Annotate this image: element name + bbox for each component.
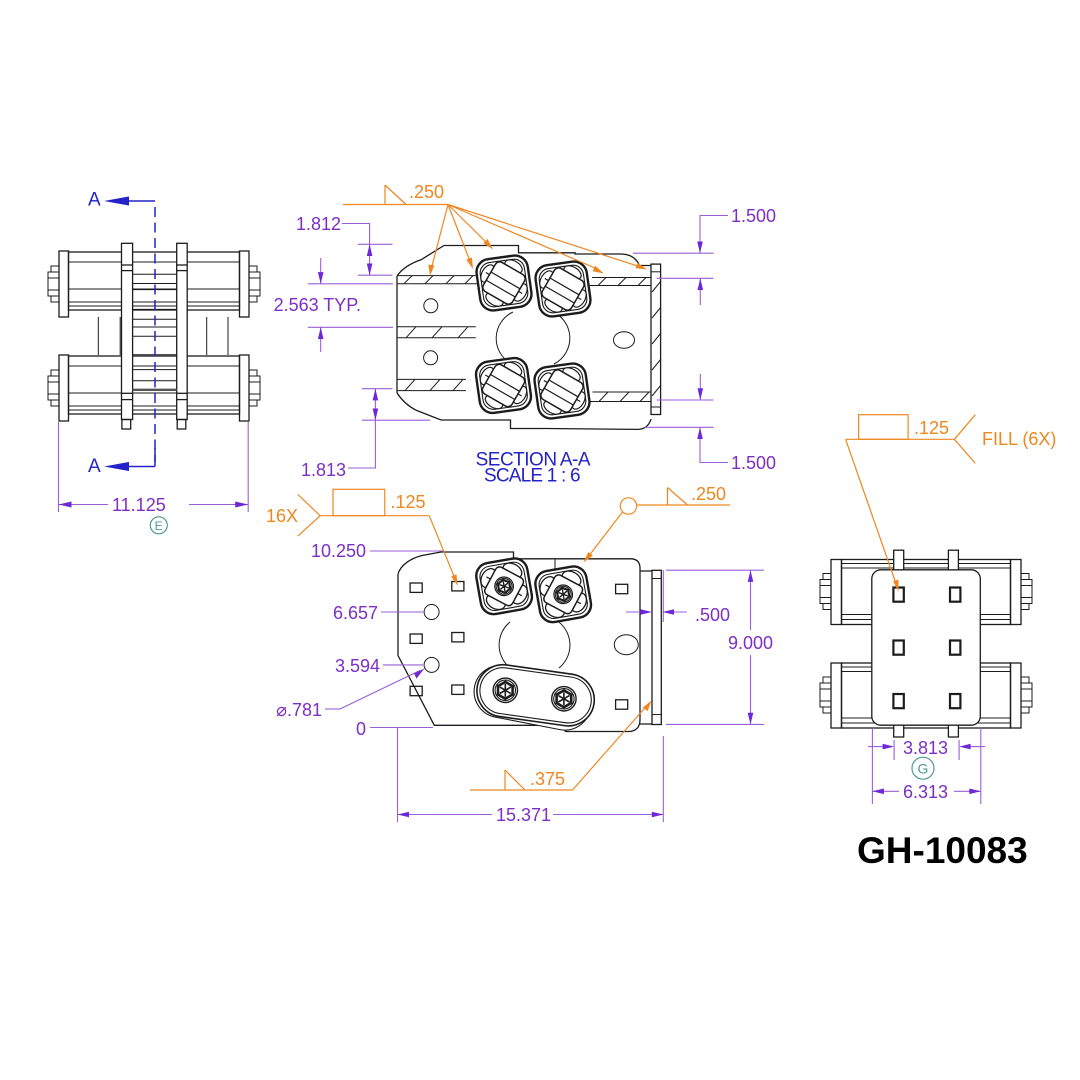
svg-text:GH-10083: GH-10083 <box>857 830 1028 871</box>
svg-text:.125: .125 <box>391 492 426 512</box>
svg-text:15.371: 15.371 <box>496 805 551 825</box>
svg-text:1.500: 1.500 <box>731 206 776 226</box>
svg-text:6.313: 6.313 <box>903 782 948 802</box>
svg-text:3.813: 3.813 <box>903 738 948 758</box>
svg-text:E: E <box>155 519 163 533</box>
svg-text:SCALE 1 : 6: SCALE 1 : 6 <box>484 466 580 487</box>
svg-text:1.812: 1.812 <box>296 214 341 234</box>
svg-text:A: A <box>88 190 101 211</box>
svg-text:3.594: 3.594 <box>335 656 380 676</box>
svg-text:.250: .250 <box>409 182 444 202</box>
svg-text:.250: .250 <box>691 484 726 504</box>
svg-text:16X: 16X <box>266 506 298 526</box>
svg-text:11.125: 11.125 <box>112 495 166 515</box>
svg-text:1.813: 1.813 <box>301 460 346 480</box>
svg-text:.500: .500 <box>695 605 730 625</box>
svg-text:2.563 TYP.: 2.563 TYP. <box>274 295 361 315</box>
svg-text:0: 0 <box>356 719 366 739</box>
svg-text:.125: .125 <box>914 418 949 438</box>
svg-text:A: A <box>88 456 101 477</box>
svg-text:FILL (6X): FILL (6X) <box>982 429 1056 449</box>
svg-text:G: G <box>918 761 929 777</box>
svg-text:⌀.781: ⌀.781 <box>276 700 322 720</box>
svg-text:6.657: 6.657 <box>333 603 378 623</box>
svg-text:1.500: 1.500 <box>731 453 776 473</box>
svg-text:.375: .375 <box>530 769 565 789</box>
svg-text:10.250: 10.250 <box>311 541 366 561</box>
svg-text:9.000: 9.000 <box>728 633 773 653</box>
